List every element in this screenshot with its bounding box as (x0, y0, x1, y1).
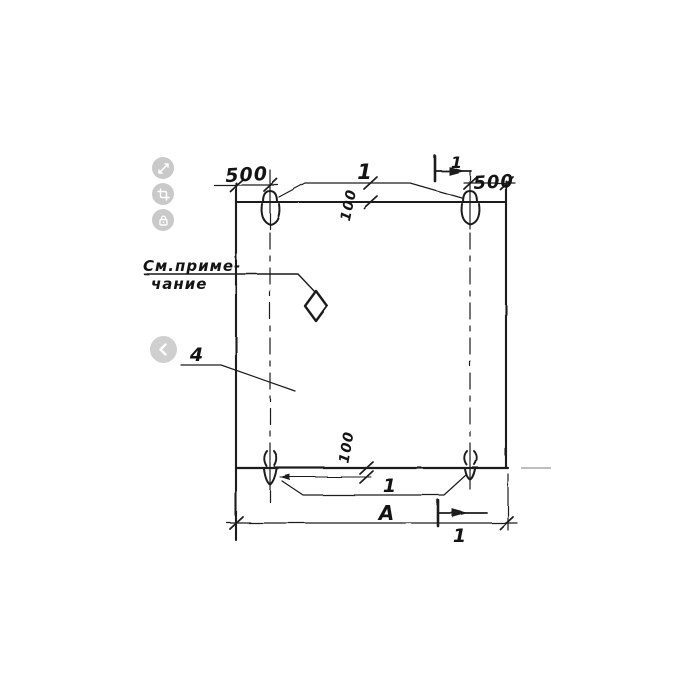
note-text-line2: чание (151, 275, 207, 293)
lock-icon (157, 214, 170, 227)
bottom-offset-label-100: 100 (336, 430, 357, 465)
bottom-callout-label: 1 (383, 475, 397, 497)
bottom-left-loop-arc-r (274, 451, 277, 466)
quality-diamond (305, 291, 327, 321)
bottom-offset-arrow (280, 474, 290, 480)
top-callout-label: 1 (357, 160, 373, 184)
expand-arrows-icon (157, 162, 170, 175)
panel-drawing: 500 500 1 100 1 См.приме- чание 4 100 1 … (0, 0, 700, 700)
bottom-callout-leader (282, 475, 466, 495)
crop-icon (157, 188, 170, 201)
previous-image-button[interactable] (150, 336, 177, 363)
section-mark-bottom-arrow (452, 509, 468, 518)
top-callout-leader (279, 183, 462, 198)
chevron-left-icon (156, 342, 171, 357)
lock-button[interactable] (152, 209, 174, 231)
bottom-right-loop-arc-l (464, 451, 467, 465)
part-leader (181, 365, 295, 391)
dim-label-500-right: 500 (473, 171, 515, 194)
top-section-label: 1 (451, 153, 463, 172)
expand-button[interactable] (152, 157, 174, 179)
image-viewer: 500 500 1 100 1 См.приме- чание 4 100 1 … (0, 0, 700, 700)
bottom-right-loop-arc-r (474, 451, 477, 465)
note-text-line1: См.приме- (143, 257, 241, 275)
bottom-left-loop-arc-l (264, 451, 267, 466)
bottom-section-label: 1 (453, 525, 467, 547)
top-offset-label-100: 100 (338, 188, 360, 223)
dim-label-500-left: 500 (225, 163, 269, 187)
crop-button[interactable] (152, 183, 174, 205)
part-number-label: 4 (189, 344, 204, 366)
overall-width-label: A (377, 501, 395, 525)
